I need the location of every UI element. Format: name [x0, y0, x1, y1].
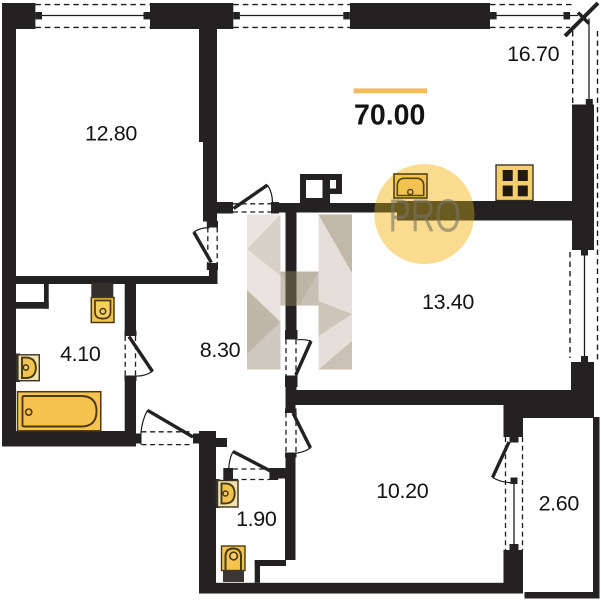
- svg-text:13.40: 13.40: [422, 290, 474, 314]
- svg-text:70.00: 70.00: [354, 100, 425, 132]
- svg-text:1.90: 1.90: [236, 507, 277, 531]
- svg-text:8.30: 8.30: [200, 338, 241, 362]
- svg-text:16.70: 16.70: [507, 42, 559, 66]
- svg-text:12.80: 12.80: [85, 121, 137, 145]
- svg-text:4.10: 4.10: [60, 342, 101, 366]
- svg-text:10.20: 10.20: [376, 479, 428, 503]
- svg-text:2.60: 2.60: [539, 492, 580, 516]
